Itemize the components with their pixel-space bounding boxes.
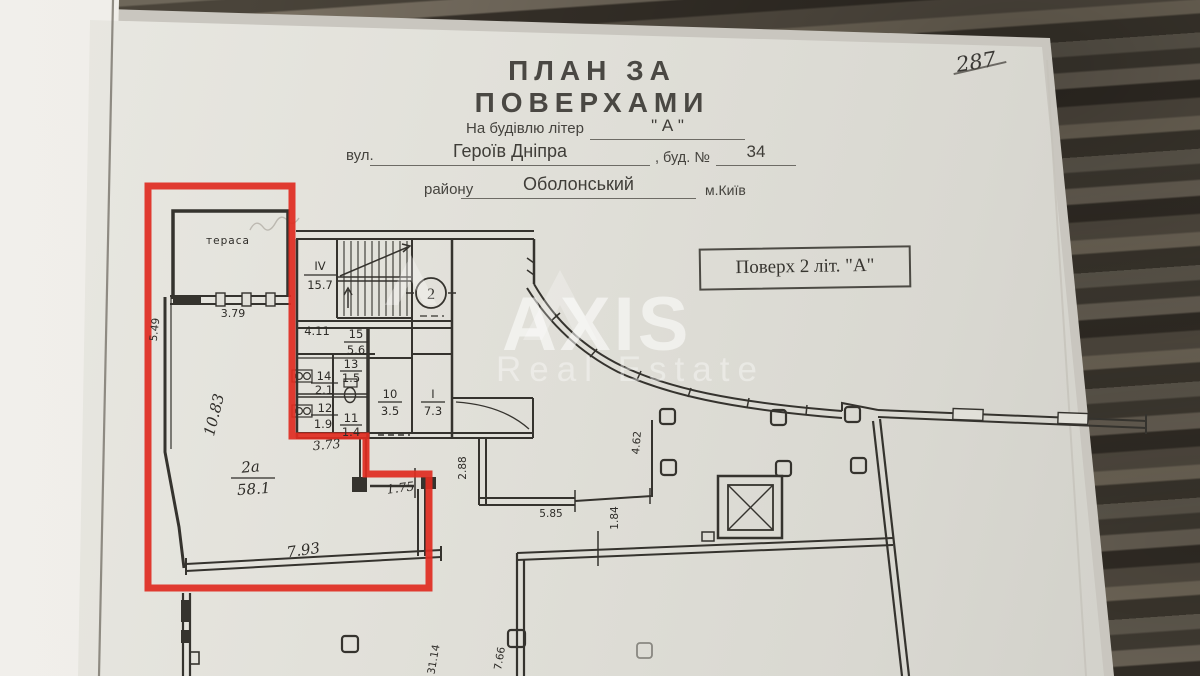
room-13-area: 1.5 [342,371,360,385]
dim-7-66: 7.66 [492,646,508,671]
dim-5-85: 5.85 [539,508,562,520]
street-value: Героїв Дніпра [370,141,650,162]
dim-4-62: 4.62 [630,431,644,455]
district-field: Оболонський [461,174,696,199]
floor-number-circle: 2 [406,278,456,316]
dim-31-14: 31.14 [426,643,443,675]
page-title: ПЛАН ЗА ПОВЕРХАМИ [392,55,792,119]
dim-3-73: 3.73 [312,436,341,453]
room-2a-no: 2а [240,457,261,477]
photo-of-floor-plan-document: 2 тераса IV 15.7 4.11 15 5.6 14 2.1 13 1… [0,0,1200,676]
room-I-no: I [431,387,434,401]
room-14-area: 2.1 [315,383,333,397]
dim-4-11: 4.11 [304,324,330,338]
dim-1-75: 1.75 [386,478,415,496]
dim-7-93: 7.93 [286,539,322,561]
room-IV-area: 15.7 [307,278,333,292]
room-I-area: 7.3 [424,404,442,418]
dim-10-83: 10.83 [200,392,228,438]
room-11-area: 1.4 [342,425,360,439]
watermark-tagline: Real Estate [496,350,765,390]
building-letter-label: На будівлю літер [466,120,584,137]
terrace-label: тераса [206,235,250,247]
building-letter-field: " А " [590,116,745,140]
house-number-label: , буд. № [655,150,710,166]
room-12-area: 1.9 [314,417,332,431]
dim-1-84: 1.84 [609,506,621,530]
floor-number-label: 2 [427,286,435,303]
room-15-no: 15 [349,327,364,341]
dim-3-79: 3.79 [221,307,246,320]
building-letter-value: " А " [590,116,745,136]
room-13-no: 13 [344,357,359,371]
room-10-no: 10 [383,387,398,401]
floor-badge: Поверх 2 літ. "А" [699,245,912,290]
room-12-no: 12 [318,401,333,415]
room-11-no: 11 [344,411,359,425]
room-2a-area: 58.1 [236,479,271,499]
street-field: Героїв Дніпра [370,141,650,166]
city-label: м.Київ [705,182,746,198]
house-number-value: 34 [716,142,796,162]
staircase [337,241,412,316]
house-number-field: 34 [716,142,796,166]
room-10-area: 3.5 [381,404,399,418]
room-15-area: 5.6 [347,343,365,357]
room-IV-no: IV [314,259,325,273]
district-value: Оболонський [461,174,696,195]
room-14-no: 14 [317,369,332,383]
dim-5-49: 5.49 [148,317,163,342]
dim-2-88: 2.88 [457,456,469,479]
